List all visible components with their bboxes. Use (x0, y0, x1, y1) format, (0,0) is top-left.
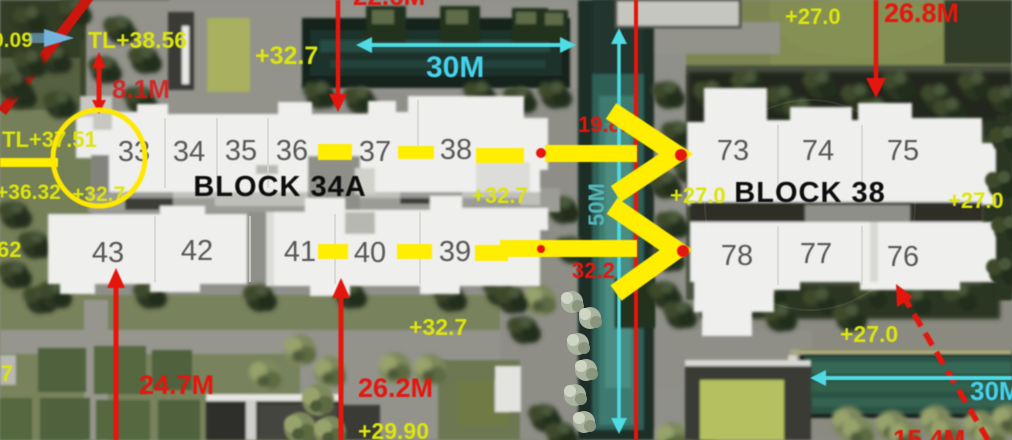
svg-text:+36.32: +36.32 (0, 181, 61, 204)
svg-text:+27.0: +27.0 (948, 188, 1004, 213)
svg-text:74: 74 (802, 135, 834, 167)
svg-text:+32.7: +32.7 (409, 314, 467, 340)
svg-text:37: 37 (359, 136, 391, 168)
svg-text:26.2M: 26.2M (358, 373, 433, 403)
svg-text:39: 39 (439, 236, 471, 268)
svg-text:22.6M: 22.6M (353, 0, 425, 11)
svg-text:43: 43 (92, 237, 124, 269)
svg-text:50M: 50M (584, 183, 609, 226)
svg-text:32.7: 32.7 (0, 361, 13, 386)
svg-text:75: 75 (887, 135, 919, 167)
svg-text:30M: 30M (970, 376, 1012, 406)
svg-text:24.7M: 24.7M (139, 370, 214, 400)
svg-text:TL+38.56: TL+38.56 (88, 27, 187, 53)
svg-text:36: 36 (276, 135, 308, 167)
svg-text:BLOCK 38: BLOCK 38 (734, 177, 885, 209)
svg-text:41: 41 (284, 236, 316, 268)
svg-text:62: 62 (0, 237, 21, 262)
svg-text:+27.0: +27.0 (840, 321, 898, 347)
svg-text:35: 35 (225, 135, 257, 167)
svg-text:42: 42 (181, 235, 213, 267)
svg-text:+32.7: +32.7 (472, 183, 528, 208)
svg-text:15.4M: 15.4M (893, 424, 965, 440)
svg-text:38: 38 (440, 134, 472, 166)
svg-text:26.8M: 26.8M (884, 0, 959, 28)
svg-text:+29.90: +29.90 (358, 418, 429, 440)
svg-text:TL+37.51: TL+37.51 (2, 127, 97, 152)
svg-text:BLOCK 34A: BLOCK 34A (193, 171, 366, 203)
svg-text:+27.0: +27.0 (785, 4, 841, 29)
svg-text:73: 73 (717, 135, 749, 167)
svg-text:77: 77 (800, 238, 832, 270)
svg-text:+27.0: +27.0 (670, 183, 726, 208)
svg-text:30M: 30M (426, 51, 484, 84)
svg-text:40: 40 (354, 237, 386, 269)
svg-text:34: 34 (173, 136, 205, 168)
svg-text:78: 78 (721, 240, 753, 272)
svg-text:+32.7: +32.7 (255, 42, 318, 70)
svg-text:0.09: 0.09 (0, 29, 33, 52)
svg-text:32.2: 32.2 (572, 258, 615, 283)
svg-text:76: 76 (887, 241, 919, 273)
svg-text:8.1M: 8.1M (112, 74, 170, 104)
